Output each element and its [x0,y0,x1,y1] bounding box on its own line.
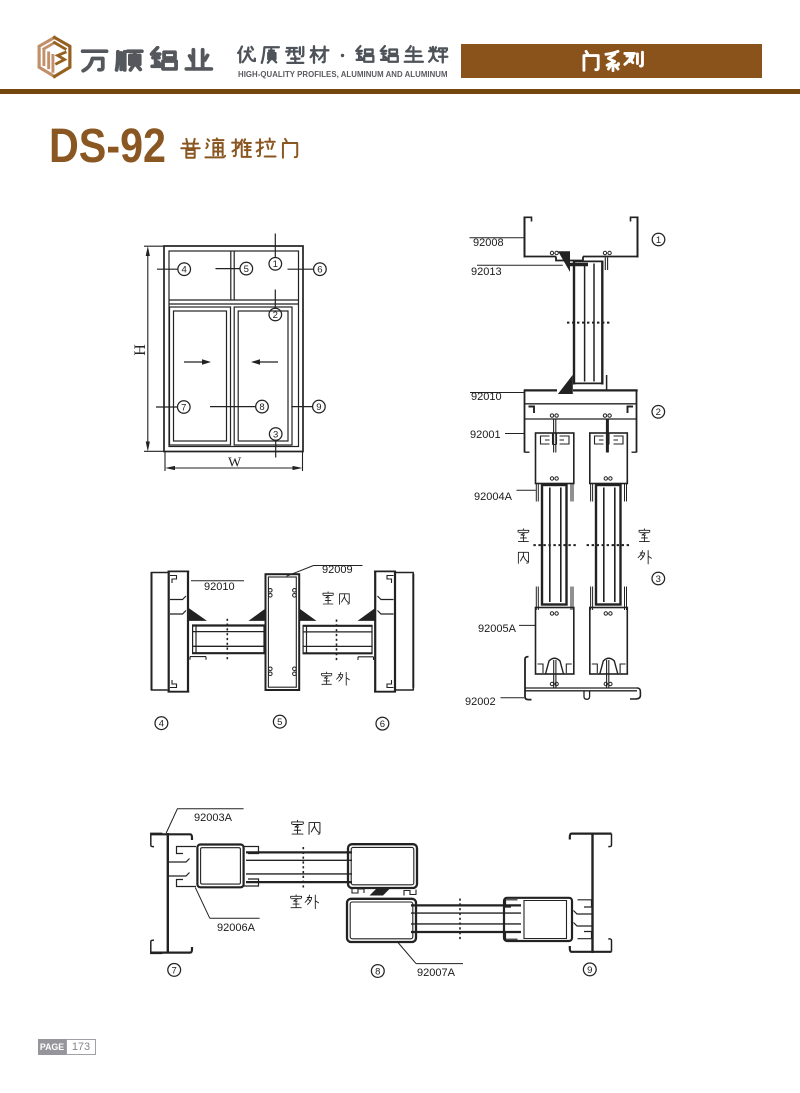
svg-text:5: 5 [277,717,282,728]
svg-text:92006A: 92006A [217,922,256,934]
svg-text:9: 9 [587,965,592,976]
svg-text:3: 3 [273,429,278,440]
svg-text:92013: 92013 [471,266,502,278]
svg-text:92009: 92009 [322,564,353,576]
svg-text:92010: 92010 [471,391,502,403]
svg-text:2: 2 [656,407,661,418]
svg-text:2: 2 [273,310,278,321]
svg-text:92010: 92010 [204,581,235,593]
svg-text:92003A: 92003A [194,812,233,824]
svg-text:92004A: 92004A [474,491,513,503]
svg-text:8: 8 [259,402,264,413]
svg-text:9: 9 [316,402,321,413]
svg-text:92001: 92001 [470,429,501,441]
svg-text:1: 1 [273,259,278,270]
svg-text:92002: 92002 [465,696,496,708]
svg-text:W: W [228,456,242,471]
svg-text:8: 8 [375,966,380,977]
svg-text:4: 4 [159,719,164,730]
svg-text:5: 5 [244,264,249,275]
svg-text:92008: 92008 [473,237,504,249]
svg-text:H: H [132,344,149,356]
svg-text:92007A: 92007A [417,967,456,979]
svg-text:6: 6 [317,265,322,276]
svg-text:6: 6 [380,719,385,730]
svg-text:3: 3 [656,574,661,585]
svg-text:92005A: 92005A [478,623,517,635]
svg-text:7: 7 [181,402,186,413]
svg-text:7: 7 [172,965,177,976]
svg-text:1: 1 [656,235,661,246]
svg-text:4: 4 [182,265,187,276]
